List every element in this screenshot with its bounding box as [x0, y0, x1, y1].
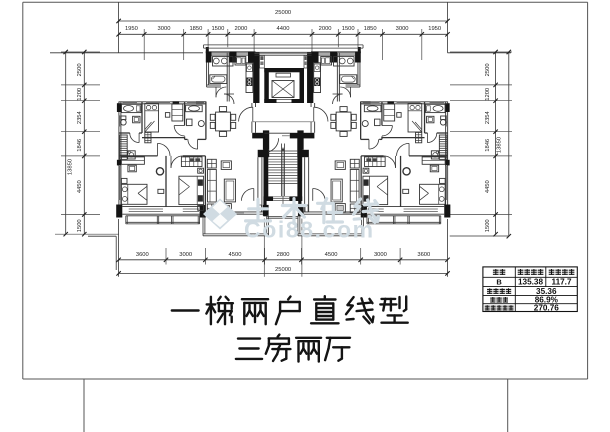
svg-text:2500: 2500 [485, 63, 491, 76]
svg-text:2354: 2354 [485, 110, 491, 124]
svg-text:3600: 3600 [136, 252, 149, 258]
svg-text:4400: 4400 [277, 26, 290, 32]
svg-text:1846: 1846 [485, 139, 491, 152]
svg-text:270.76: 270.76 [534, 303, 559, 312]
svg-text:1850: 1850 [189, 26, 202, 32]
svg-text:1846: 1846 [77, 139, 83, 152]
svg-text:3000: 3000 [158, 26, 171, 32]
svg-text:25000: 25000 [275, 267, 291, 273]
svg-text:4450: 4450 [77, 180, 83, 193]
svg-text:1850: 1850 [364, 26, 377, 32]
svg-text:1500: 1500 [211, 26, 224, 32]
svg-text:1950: 1950 [428, 26, 441, 32]
svg-text:1500: 1500 [485, 219, 491, 232]
svg-text:1500: 1500 [77, 219, 83, 232]
svg-text:117.7: 117.7 [551, 278, 571, 287]
svg-text:3000: 3000 [374, 252, 387, 258]
svg-text:135.38: 135.38 [518, 278, 543, 287]
svg-text:2000: 2000 [319, 26, 332, 32]
svg-text:4450: 4450 [485, 180, 491, 193]
svg-text:25000: 25000 [275, 10, 291, 16]
svg-text:4500: 4500 [229, 252, 242, 258]
svg-text:B: B [496, 277, 502, 286]
svg-text:3000: 3000 [179, 252, 192, 258]
svg-text:2500: 2500 [77, 63, 83, 76]
svg-text:2354: 2354 [77, 110, 83, 124]
svg-text:1200: 1200 [77, 88, 83, 101]
svg-text:Coi88.com: Coi88.com [244, 217, 375, 243]
svg-text:1950: 1950 [125, 26, 138, 32]
svg-text:2000: 2000 [234, 26, 247, 32]
svg-text:3600: 3600 [417, 252, 430, 258]
svg-text:1500: 1500 [342, 26, 355, 32]
svg-text:2800: 2800 [277, 252, 290, 258]
svg-text:13850: 13850 [68, 159, 74, 175]
svg-text:4500: 4500 [325, 252, 338, 258]
svg-text:13850: 13850 [497, 137, 503, 153]
svg-text:3000: 3000 [396, 26, 409, 32]
svg-text:1200: 1200 [485, 88, 491, 101]
